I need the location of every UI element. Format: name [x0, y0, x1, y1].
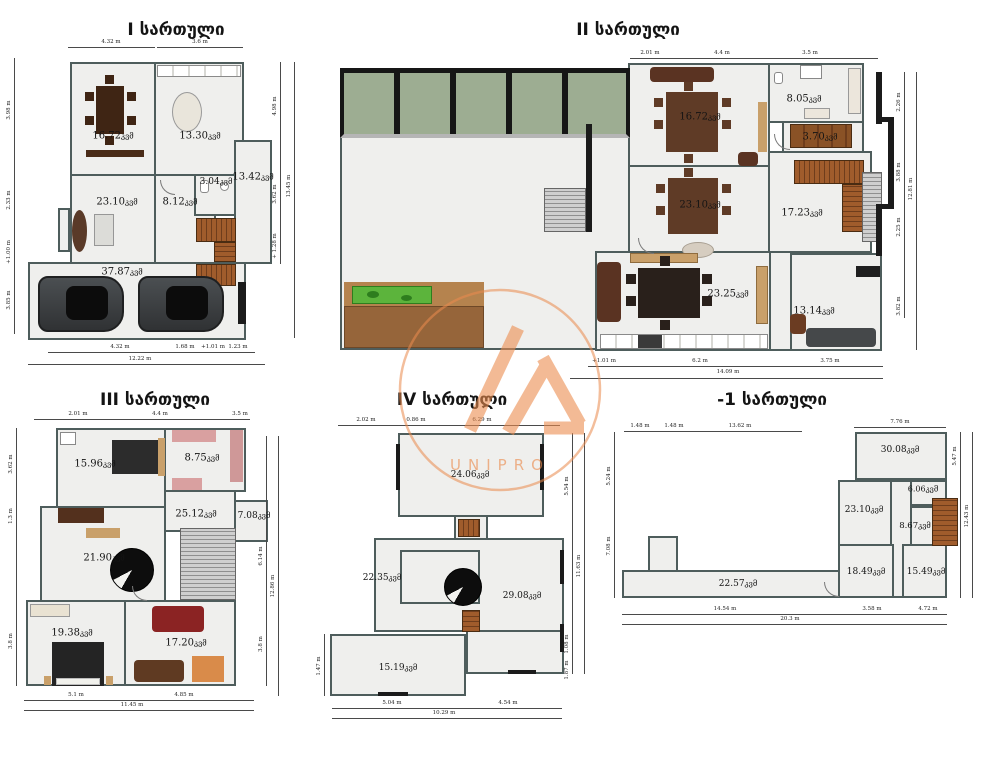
cabinet — [758, 102, 767, 152]
area-unit: კვმ — [204, 510, 217, 519]
floor-minus1-title: -1 სართული — [717, 390, 827, 410]
chair — [684, 154, 693, 163]
dim-label: 12.86 m — [270, 575, 276, 598]
dim-label: 1.68 m — [175, 344, 194, 350]
room-area-label: 23.10კვმ — [679, 200, 720, 211]
dim-label: 4.4 m — [714, 50, 730, 56]
room-area-label: 13.42კვმ — [232, 172, 273, 183]
unipro-logo-icon — [470, 328, 584, 432]
dim-line — [266, 436, 267, 686]
dim-label: 3.8 m — [8, 633, 14, 649]
area-unit: კვმ — [185, 198, 198, 207]
area-unit: კვმ — [220, 177, 233, 186]
spiral-stairs — [444, 568, 482, 606]
room-area-label: 22.57კვმ — [719, 579, 757, 589]
chair — [656, 184, 665, 193]
stairs — [932, 498, 958, 546]
area-unit: კვმ — [529, 591, 542, 600]
dim-label: 2.25 m — [896, 217, 902, 236]
dim-line — [24, 700, 254, 701]
dim-label: 4.32 m — [110, 344, 129, 350]
kitchen-counter — [600, 334, 768, 349]
dim-line — [280, 62, 281, 264]
dim-label: 12.43 m — [964, 505, 970, 528]
floor-3-plan: III სართული 2.01 m 4.4 m 3.5 m 15.96კვმ … — [14, 386, 334, 766]
area-value: 16.72 — [679, 112, 708, 123]
shelf — [756, 266, 768, 324]
area-value: 25.12 — [175, 509, 204, 520]
wall-accent — [508, 670, 536, 674]
dim-label: 3.58 m — [862, 606, 881, 612]
dim-label: 3.85 m — [6, 290, 12, 309]
green-spot — [367, 291, 379, 298]
area-unit: კვმ — [103, 460, 116, 469]
area-value: 23.10 — [679, 200, 708, 211]
table — [94, 214, 114, 246]
dim-label: 13.62 m — [729, 423, 752, 429]
dim-label: 1.3 m — [8, 508, 14, 524]
stairs — [842, 184, 864, 232]
area-value: 15.49 — [907, 567, 933, 577]
room — [855, 432, 947, 480]
nightstand — [106, 676, 113, 685]
dim-label: 1.08 m — [564, 634, 570, 653]
dim-label: 1.23 m — [228, 344, 247, 350]
dim-label: 3.98 m — [6, 100, 12, 119]
area-unit: კვმ — [708, 201, 721, 210]
room-area-label: 8.67კვმ — [899, 521, 931, 531]
car — [138, 276, 224, 332]
dining-table — [638, 268, 700, 318]
area-unit: კვმ — [194, 639, 207, 648]
room-area-label: 30.08კვმ — [881, 445, 919, 455]
bathtub — [848, 68, 861, 114]
sofa — [806, 328, 876, 347]
window-mullion — [450, 73, 456, 134]
area-value: 21.90 — [83, 553, 112, 564]
room-area-label: 13.14კვმ — [793, 306, 834, 317]
stairs — [794, 160, 864, 184]
chair — [684, 168, 693, 177]
floor-1-plan: I სართული 4.32 m 3.6 m — [20, 14, 335, 386]
car — [38, 276, 124, 332]
area-unit: კვმ — [822, 307, 835, 316]
room-area-label: 23.10კვმ — [845, 505, 883, 515]
chair — [626, 274, 636, 284]
dim-line — [294, 62, 295, 338]
dim-line — [916, 72, 917, 350]
washer — [800, 65, 822, 79]
dim-line — [332, 708, 562, 709]
dim-line — [332, 718, 562, 719]
area-value: 18.49 — [847, 567, 873, 577]
area-value: 13.42 — [232, 172, 261, 183]
dim-label: 5.04 m — [382, 700, 401, 706]
area-unit: კვმ — [207, 454, 220, 463]
room-area-label: 8.05კვმ — [787, 94, 822, 105]
chair — [702, 274, 712, 284]
chair — [656, 206, 665, 215]
dim-line — [622, 614, 947, 615]
bench — [172, 478, 202, 490]
dim-label: 4.54 m — [498, 700, 517, 706]
stairs — [462, 610, 480, 632]
dim-label: 2.33 m — [6, 190, 12, 209]
area-value: 19.38 — [51, 628, 80, 639]
dim-label: 20.3 m — [780, 616, 799, 622]
door-arc — [774, 134, 790, 150]
room-area-label: 16.72კვმ — [679, 112, 720, 123]
dim-line — [157, 47, 243, 48]
area-value: 13.30 — [179, 131, 208, 142]
chair — [722, 120, 731, 129]
dim-line — [904, 72, 905, 318]
area-unit: კვმ — [121, 132, 134, 141]
oval-dining-table — [172, 92, 202, 132]
dim-label: 5.47 m — [952, 446, 958, 465]
garage-door — [238, 282, 246, 324]
dim-label: 4.85 m — [174, 692, 193, 698]
area-unit: კვმ — [918, 521, 931, 530]
area-unit: კვმ — [258, 511, 271, 520]
dim-label: 14.09 m — [717, 369, 740, 375]
wall-accent — [888, 117, 894, 209]
wardrobe — [230, 430, 243, 482]
sofa — [650, 67, 714, 82]
area-unit: კვმ — [405, 663, 418, 672]
watermark-text: UNIPRO — [450, 456, 550, 474]
dim-line — [324, 634, 325, 696]
chair — [654, 120, 663, 129]
room-area-label: 29.08კვმ — [503, 591, 541, 601]
area-unit: კვმ — [708, 113, 721, 122]
chair — [626, 296, 636, 306]
area-unit: კვმ — [926, 485, 939, 494]
room-area-label: 17.20კვმ — [165, 638, 206, 649]
room-area-label: 3.70კვმ — [803, 132, 838, 143]
area-unit: კვმ — [907, 445, 920, 454]
area-value: 8.05 — [787, 94, 809, 105]
area-unit: კვმ — [80, 629, 93, 638]
chair — [660, 320, 670, 330]
area-value: 22.57 — [719, 579, 745, 589]
area-value: 15.96 — [74, 459, 103, 470]
room-area-label: 23.25კვმ — [707, 289, 748, 300]
dresser — [58, 508, 104, 523]
dim-label: 1.48 m — [664, 423, 683, 429]
room-area-label: 7.08კვმ — [238, 511, 271, 521]
area-unit: კვმ — [112, 554, 125, 563]
chair — [660, 256, 670, 266]
floorplan-sheet: I სართული 4.32 m 3.6 m — [0, 0, 1000, 772]
unipro-watermark: UNIPRO — [380, 278, 620, 518]
stairs — [214, 242, 236, 262]
dim-label: 6.14 m — [258, 546, 264, 565]
dim-line — [588, 366, 883, 367]
dim-label: 13.45 m — [286, 175, 292, 198]
dim-label: 3.75 m — [820, 358, 839, 364]
area-unit: კვმ — [810, 209, 823, 218]
dim-line — [68, 47, 155, 48]
corridor-bump — [648, 536, 678, 572]
area-unit: კვმ — [873, 567, 886, 576]
headboard — [158, 438, 165, 476]
window-mullion — [394, 73, 400, 134]
area-value: 8.12 — [163, 197, 185, 208]
area-unit: კვმ — [736, 290, 749, 299]
area-unit: კვმ — [261, 173, 274, 182]
room-area-label: 15.19კვმ — [379, 663, 417, 673]
car-cabin — [166, 286, 208, 320]
sofa — [134, 660, 184, 682]
room-area-label: 13.30კვმ — [179, 131, 220, 142]
dim-label: 3.62 m — [272, 184, 278, 203]
dim-label: 1.48 m — [630, 423, 649, 429]
area-unit: კვმ — [130, 268, 143, 277]
area-unit: კვმ — [125, 198, 138, 207]
area-value: 23.25 — [707, 289, 736, 300]
dim-label: 2.01 m — [640, 50, 659, 56]
sofa — [152, 606, 204, 632]
floor-minus1-plan: -1 სართული 1.48 m 1.48 m 13.62 m 7.76 m … — [610, 386, 1000, 726]
dim-label: 11.45 m — [121, 702, 144, 708]
sofa — [72, 210, 87, 252]
chair — [85, 116, 94, 125]
dim-label: 2.02 m — [356, 417, 375, 423]
stairs — [180, 528, 236, 600]
dim-label: 4.72 m — [918, 606, 937, 612]
area-value: 30.08 — [881, 445, 907, 455]
dim-label: 6.2 m — [692, 358, 708, 364]
area-unit: კვმ — [389, 573, 402, 582]
dining-table — [96, 86, 124, 134]
window-mullion — [562, 73, 568, 134]
kitchen-counter — [157, 65, 241, 77]
nightstand — [44, 676, 51, 685]
dim-label: 10.29 m — [433, 710, 456, 716]
wall-accent — [378, 692, 408, 696]
area-value: 17.23 — [781, 208, 810, 219]
floor-1-title: I სართული — [127, 20, 224, 40]
area-value: 16.72 — [92, 131, 121, 142]
area-value: 17.20 — [165, 638, 194, 649]
dim-label: 12.22 m — [129, 356, 152, 362]
dim-label: 11.63 m — [576, 555, 582, 578]
stairs — [458, 519, 480, 537]
area-value: 8.75 — [185, 453, 207, 464]
dim-label: 3.82 m — [896, 296, 902, 315]
area-unit: კვმ — [871, 505, 884, 514]
chair — [684, 82, 693, 91]
wall-accent — [876, 204, 882, 256]
floor-2-title: II სართული — [576, 20, 680, 40]
closet — [30, 604, 70, 617]
dim-line — [24, 710, 254, 711]
area-value: 23.10 — [96, 197, 125, 208]
floor-3-title: III სართული — [100, 390, 210, 410]
stove — [638, 335, 662, 348]
dim-label: 5.1 m — [68, 692, 84, 698]
dim-label: +1.00 m — [6, 240, 12, 264]
dim-label: 4.98 m — [272, 96, 278, 115]
room — [466, 630, 564, 674]
area-unit: კვმ — [809, 95, 822, 104]
dim-label: 7.08 m — [606, 536, 612, 555]
dim-label: 2.01 m — [68, 411, 87, 417]
dim-label: +1.01 m — [201, 344, 225, 350]
sideboard — [86, 150, 144, 157]
dim-label: 3.5 m — [802, 50, 818, 56]
rug — [192, 656, 224, 682]
armchair — [738, 152, 758, 166]
room-area-label: 8.12კვმ — [163, 197, 198, 208]
dim-label: 1.47 m — [316, 656, 322, 675]
desk — [60, 432, 76, 445]
room-area-label: 25.12კვმ — [175, 509, 216, 520]
area-value: 15.19 — [379, 663, 405, 673]
dim-line — [622, 624, 947, 625]
area-value: 6.06 — [908, 485, 926, 494]
room-area-label: 6.06კვმ — [908, 485, 938, 494]
stairs — [544, 188, 586, 232]
dim-label: 4.32 m — [101, 39, 120, 45]
dim-label: 12.81 m — [908, 178, 914, 201]
room-area-label: 37.87კვმ — [101, 267, 142, 278]
vanity — [804, 108, 830, 119]
room — [234, 140, 272, 264]
chair — [127, 116, 136, 125]
dim-line — [960, 432, 961, 598]
toilet — [774, 72, 783, 84]
dim-label: 3.88 m — [896, 162, 902, 181]
area-value: 3.70 — [803, 132, 825, 143]
pillows — [56, 678, 100, 685]
wall-accent — [560, 550, 564, 584]
area-value: 22.35 — [363, 573, 389, 583]
chair — [105, 75, 114, 84]
dim-label: 3.8 m — [258, 636, 264, 652]
dim-line — [14, 58, 15, 334]
room — [234, 500, 268, 542]
chair — [654, 98, 663, 107]
dim-label: 4.4 m — [152, 411, 168, 417]
room-area-label: 3.04კვმ — [200, 177, 233, 187]
dim-line — [630, 58, 878, 59]
chair — [722, 184, 731, 193]
bed — [112, 440, 160, 474]
dim-line — [972, 432, 973, 598]
dim-label: 7.76 m — [890, 419, 909, 425]
bench — [86, 528, 120, 538]
dim-label: + 1.28 m — [272, 233, 278, 259]
dim-line — [48, 352, 255, 353]
wardrobe — [172, 430, 216, 442]
room-area-label: 21.90კვმ — [83, 553, 124, 564]
window-mullion — [506, 73, 512, 134]
chair — [722, 206, 731, 215]
area-unit: კვმ — [933, 567, 946, 576]
stairs — [196, 218, 236, 242]
dim-line — [278, 436, 279, 696]
dim-line — [624, 431, 802, 432]
area-value: 23.10 — [845, 505, 871, 515]
desk — [856, 266, 880, 277]
room-area-label: 19.38კვმ — [51, 628, 92, 639]
dim-label: 1.87 m — [564, 660, 570, 679]
dim-line — [34, 419, 250, 420]
dim-label: 14.54 m — [714, 606, 737, 612]
area-value: 13.14 — [793, 306, 822, 317]
chair — [127, 92, 136, 101]
room-area-label: 17.23კვმ — [781, 208, 822, 219]
room-area-label: 15.49კვმ — [907, 567, 945, 577]
dim-line — [28, 364, 265, 365]
wall-accent — [586, 124, 592, 232]
room-area-label: 15.96კვმ — [74, 459, 115, 470]
area-value: 7.08 — [238, 511, 258, 521]
area-value: 8.67 — [899, 521, 918, 531]
room-area-label: 18.49კვმ — [847, 567, 885, 577]
area-unit: კვმ — [208, 132, 221, 141]
dim-label: 3.62 m — [8, 454, 14, 473]
area-value: 29.08 — [503, 591, 529, 601]
dim-label: 3.5 m — [232, 411, 248, 417]
area-unit: კვმ — [825, 133, 838, 142]
dim-line — [16, 428, 17, 686]
room-area-label: 22.35კვმ — [363, 573, 401, 583]
armchair — [790, 314, 806, 334]
dim-label: 2.26 m — [896, 92, 902, 111]
chair — [85, 92, 94, 101]
area-value: 3.04 — [200, 177, 220, 187]
room-area-label: 23.10კვმ — [96, 197, 137, 208]
bay-window — [58, 208, 70, 252]
car-cabin — [66, 286, 108, 320]
dim-line — [854, 427, 946, 428]
area-unit: კვმ — [745, 579, 758, 588]
room-area-label: 8.75კვმ — [185, 453, 220, 464]
room-area-label: 16.72კვმ — [92, 131, 133, 142]
area-value: 37.87 — [101, 267, 130, 278]
chair — [722, 98, 731, 107]
